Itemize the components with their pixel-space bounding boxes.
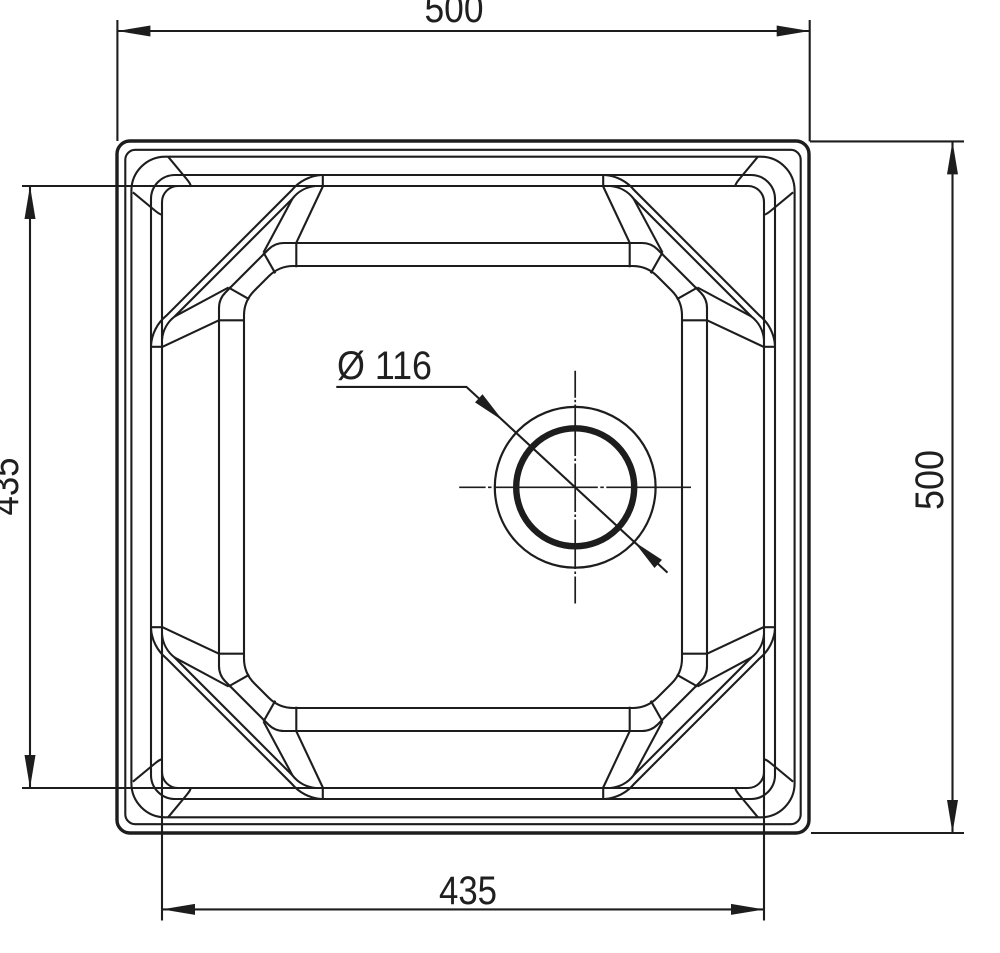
svg-text:435: 435 xyxy=(439,869,497,913)
svg-text:435: 435 xyxy=(0,458,27,516)
svg-text:500: 500 xyxy=(424,0,483,31)
svg-text:Ø 116: Ø 116 xyxy=(337,344,432,388)
svg-text:500: 500 xyxy=(908,450,952,510)
